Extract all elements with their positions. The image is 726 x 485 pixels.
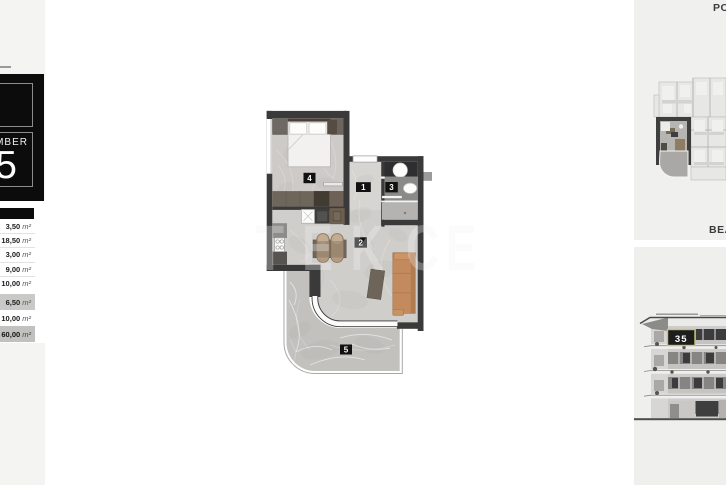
svg-text:BEACH: BEACH — [709, 224, 726, 236]
svg-text:1: 1 — [361, 183, 366, 192]
svg-text:E: E — [446, 213, 477, 284]
svg-text:POOL: POOL — [713, 2, 726, 14]
svg-text:K: K — [351, 213, 384, 284]
svg-text:35: 35 — [675, 334, 688, 345]
svg-text:E: E — [302, 213, 333, 284]
svg-text:T: T — [256, 213, 284, 284]
svg-text:C: C — [406, 213, 439, 284]
svg-text:4: 4 — [307, 174, 312, 183]
svg-text:5: 5 — [344, 345, 349, 354]
svg-text:3: 3 — [389, 183, 394, 192]
